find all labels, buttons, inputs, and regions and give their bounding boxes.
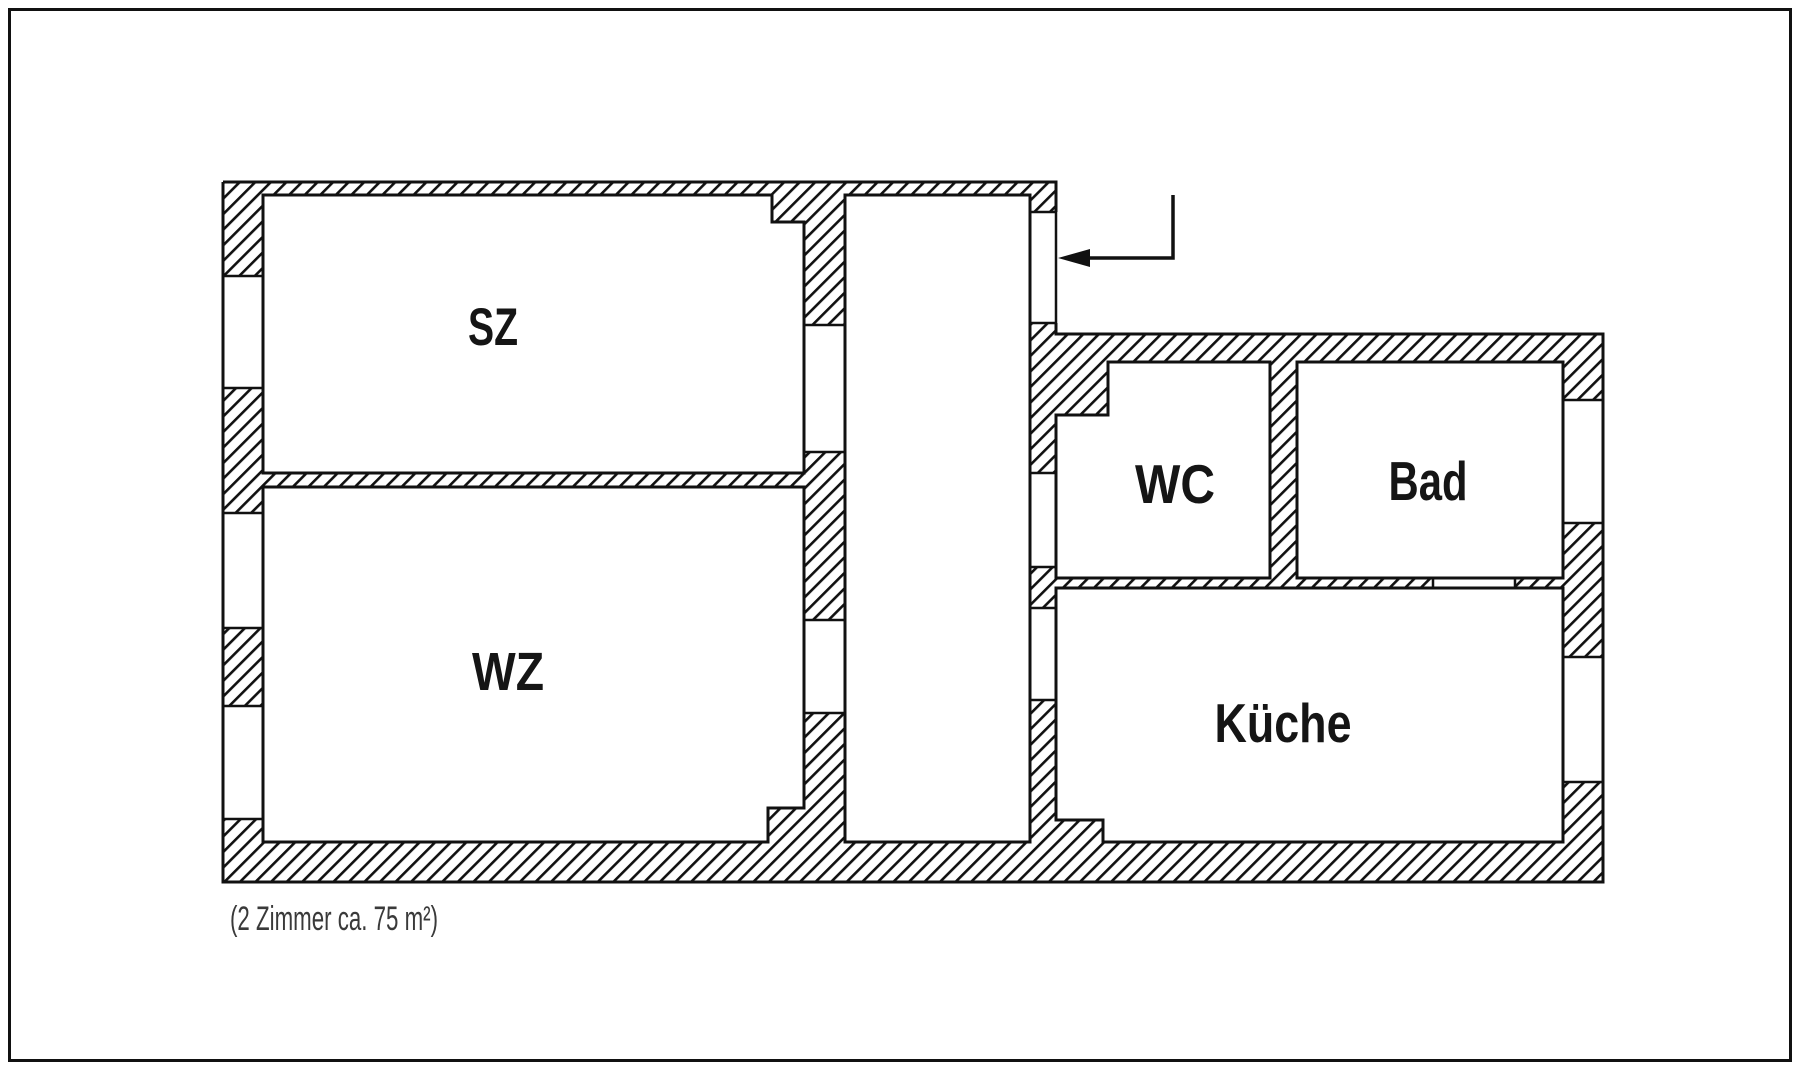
room-label-bad: Bad xyxy=(1389,450,1468,512)
floorplan-image: SZ WZ WC Bad Küche (2 Zimmer ca. 75 m²) xyxy=(0,0,1800,1072)
room-sz-area xyxy=(263,195,804,473)
room-label-wc: WC xyxy=(1135,453,1215,515)
corridor-area xyxy=(845,195,1030,842)
room-label-kueche: Küche xyxy=(1215,692,1352,754)
plan-caption: (2 Zimmer ca. 75 m²) xyxy=(230,900,438,938)
room-label-wz: WZ xyxy=(472,642,544,702)
room-areas xyxy=(263,195,1563,842)
floor-plan-svg: SZ WZ WC Bad Küche (2 Zimmer ca. 75 m²) xyxy=(0,0,1800,1072)
room-label-sz: SZ xyxy=(468,298,518,357)
entrance-arrow-icon xyxy=(1058,195,1173,267)
